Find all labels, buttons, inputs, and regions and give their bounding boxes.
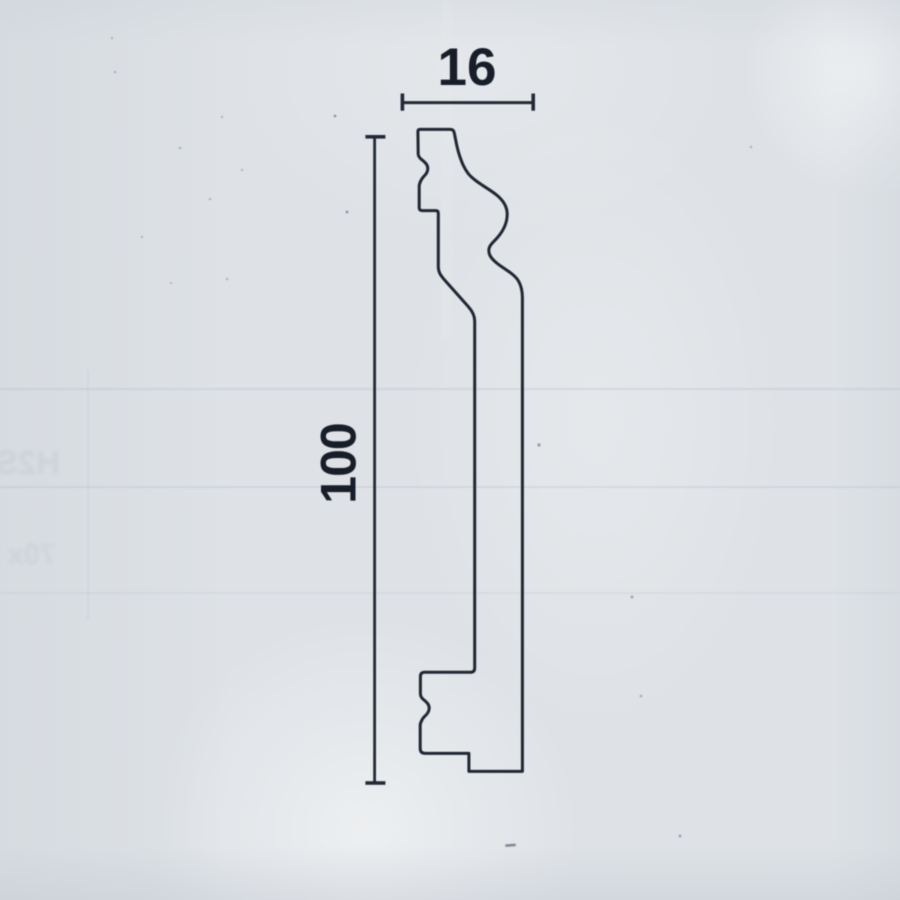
svg-text:100: 100	[311, 423, 367, 503]
svg-text:H2S: H2S	[0, 444, 60, 481]
svg-text:70x: 70x	[8, 539, 56, 571]
svg-text:16: 16	[438, 38, 497, 97]
